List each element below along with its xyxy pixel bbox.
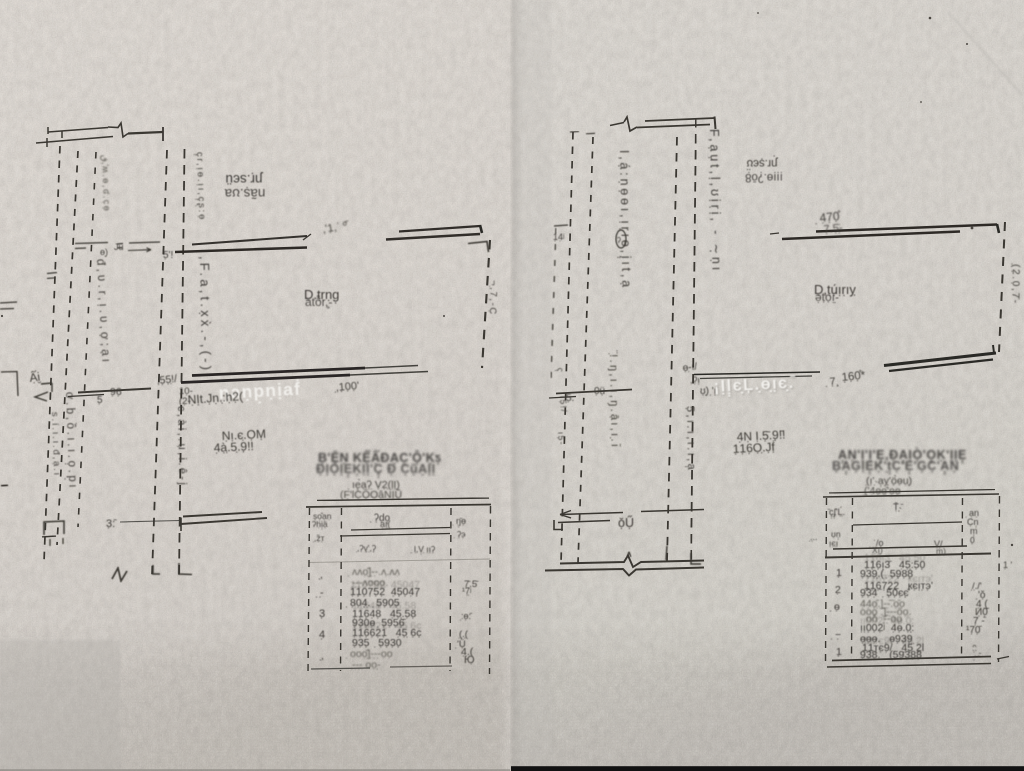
svg-text:0̣ụ̈: 0̣ụ̈ bbox=[594, 386, 605, 397]
svg-text:ɲṛ.sєü: ɲṛ.sєü bbox=[226, 172, 264, 187]
svg-text:¬,̣7,-C̣: ¬,̣7,-C̣ bbox=[487, 280, 499, 316]
svg-text:nãṣ.ʊa: nãṣ.ʊa bbox=[224, 186, 265, 201]
svg-text:ʔ: ʔ bbox=[617, 236, 621, 245]
svg-text:ṃ)̣: ṃ)̣ bbox=[936, 546, 946, 556]
svg-text:¹7̣ʲ̣: ¹7̣ʲ̣ bbox=[462, 586, 471, 596]
svg-text:1̣̣: 1̣̣ bbox=[836, 567, 842, 579]
svg-text:9̣3̣9̣.̣( ̣5̣9̣̣8̣8̣̣: 9̣3̣9̣.̣( ̣5̣9̣̣8̣8̣̣ bbox=[860, 568, 913, 580]
svg-text:1̣6̣0̣̊*: 1̣6̣0̣̊* bbox=[841, 369, 866, 384]
svg-text:1̣4̣ʲ: 1̣4̣ʲ bbox=[553, 232, 564, 242]
svg-text:ı̣є̣ı̣̣: ı̣є̣ı̣̣ bbox=[829, 538, 838, 548]
svg-text:,F.a,t.x̣x̀.-,(-): ,F.a,t.x̣x̀.-,(-) bbox=[197, 256, 214, 374]
svg-text:4̣: 4̣ bbox=[319, 629, 325, 641]
svg-text:c,ài,.ụ,i.ê-j: c,ài,.ụ,i.ê-j bbox=[175, 406, 188, 488]
svg-text:,̣ẓ̏ᴛ̣: ,̣ẓ̏ᴛ̣ bbox=[312, 533, 324, 543]
svg-text:(̣2̣.0̣,7̄-: (̣2̣.0̣,7̄- bbox=[1009, 263, 1021, 305]
svg-text:ọ̌Ụ̋: ọ̌Ụ̋ bbox=[618, 515, 634, 530]
svg-text:1̣ ': 1̣ ' bbox=[1003, 560, 1013, 570]
svg-text::̣ө̣:̄: :̣ө̣:̄ bbox=[460, 611, 474, 621]
svg-text:ʔḥị̣ạ̈: ʔḥị̣ạ̈ bbox=[312, 519, 328, 530]
svg-text:ө̣-̣ı/: ө̣-̣ı/ bbox=[682, 362, 698, 374]
svg-text:2̣: 2̣ bbox=[835, 584, 841, 596]
svg-text:.̣.̣.: .̣.̣. bbox=[809, 532, 818, 542]
svg-text:,ʔ̣ı̣: ,ʔ̣ı̣ bbox=[690, 375, 700, 386]
svg-text:¹7̣0̣̄: ¹7̣0̣̄ bbox=[966, 625, 982, 636]
svg-text:ڧ,ʹʍ.ө,ʛ.c̣ө̣: ڧ,ʹʍ.ө,ʛ.c̣ө̣ bbox=[100, 155, 112, 213]
svg-text:5̣,ı.ı,ı.ı,ạ̣: 5̣,ı.ı,ı.ı,ạ̣ bbox=[683, 406, 697, 472]
svg-text:,̣̣: ,̣̣ bbox=[320, 650, 324, 662]
svg-text:1̣1̣6̣Ọ.̣J̣ḟ̣: 1̣1̣6̣Ọ.̣J̣ḟ̣ bbox=[732, 440, 775, 456]
svg-text:̣ӏ,̣Ṿ̣ ̣ı̣ı̣ʔ̣: ̣ӏ,̣Ṿ̣ ̣ı̣ı̣ʔ̣ bbox=[410, 544, 435, 555]
svg-text:ө)̣: ө)̣ bbox=[100, 247, 108, 257]
svg-text:7̣.5̣̄-̣: 7̣.5̣̄-̣ bbox=[823, 222, 843, 236]
svg-text:ı̣ı̣ı̣ө.ʔ̣ō8̣: ı̣ı̣ı̣ө.ʔ̣ō8̣ bbox=[745, 171, 783, 183]
svg-text:Đ̣ỊỌ́ỊẸ̣ḲỊỊ'Ç̣ Đ̣ C̣ụ̆ẠI: Đ̣ỊỌ́ỊẸ̣ḲỊỊ'Ç̣ Đ̣ C̣ụ̆ẠỊỊ bbox=[316, 461, 436, 478]
svg-text:ı5̣-: ı5̣- bbox=[556, 431, 567, 446]
svg-text:5̣.: 5̣. bbox=[566, 393, 574, 404]
svg-text:9̣6̣: 9̣6̣ bbox=[110, 386, 122, 398]
svg-text:s.í.ı.ı.đ,ạ.ı: s.í.ı.ı.đ,ạ.ı bbox=[49, 412, 62, 477]
svg-text:9̣3̣8̣. (̣5̣9̣3̣8̣8̣: 9̣3̣8̣. (̣5̣9̣3̣8̣8̣ bbox=[860, 649, 922, 661]
svg-text:,̣̣: ,̣̣ bbox=[319, 569, 323, 581]
svg-text:ạı̣(̣: ạı̣(̣ bbox=[380, 519, 391, 529]
svg-text:F,ạụt,ḷ,ʊịṛị, - ∼̣ṇı: F,ạụt,ḷ,ʊịṛị, - ∼̣ṇı bbox=[707, 129, 724, 273]
svg-text:3̣: 3̣ bbox=[319, 608, 325, 620]
svg-text:4̣ạ̀.̣5.̣9̣̣!!: 4̣ạ̀.̣5.̣9̣̣!! bbox=[213, 439, 254, 455]
svg-text:0̣̣: 0̣̣ bbox=[970, 535, 975, 545]
svg-text:̄ç̣ʄ̣'̣Ḷ́.̣: ̄ç̣ʄ̣'̣Ḷ́.̣ bbox=[827, 506, 845, 519]
svg-text:,̣ʔ̣ṿ'̣̣,̣ʔ̣̣: ,̣ʔ̣ṿ'̣̣,̣ʔ̣̣ bbox=[355, 543, 376, 553]
svg-text:,̣1̣0̣0̣': ,̣1̣0̣0̣' bbox=[333, 380, 359, 394]
svg-text:5̣'!: 5̣'! bbox=[163, 250, 173, 261]
svg-text:Ю̣: Ю̣ bbox=[464, 654, 475, 666]
svg-text:-̣-̣-̣ ̣оо̣-̣̣: -̣-̣-̣ ̣оо̣-̣̣ bbox=[351, 659, 381, 671]
svg-text:ǎtô̂r,̥-: ǎtô̂r,̥- bbox=[305, 294, 332, 309]
svg-text:1̣̣: 1̣̣ bbox=[836, 646, 842, 658]
svg-text:ḄẠ̣G̣ỊẸ̣Ḳ'̣ṭ̣C̣'Ẹ̣'G̣C̣'Ạ̣N: ḄẠ̣G̣ỊẸ̣Ḳ'̣ṭ̣C̣'Ẹ̣'G̣C̣'Ạ̣Ṇ bbox=[832, 459, 959, 475]
svg-text:ɲ̣r.ṣєʊ̈: ɲ̣r.ṣєʊ̈ bbox=[746, 156, 778, 170]
svg-text:Ju: Ju bbox=[114, 242, 124, 252]
svg-text:ə̣ṭọı̣̄-̣: ə̣ṭọı̣̄-̣ bbox=[815, 290, 839, 304]
svg-text:5̣: 5̣ bbox=[97, 395, 103, 406]
svg-text:,5̣5̣!̣/: ,5̣5̣!̣/ bbox=[156, 373, 178, 387]
